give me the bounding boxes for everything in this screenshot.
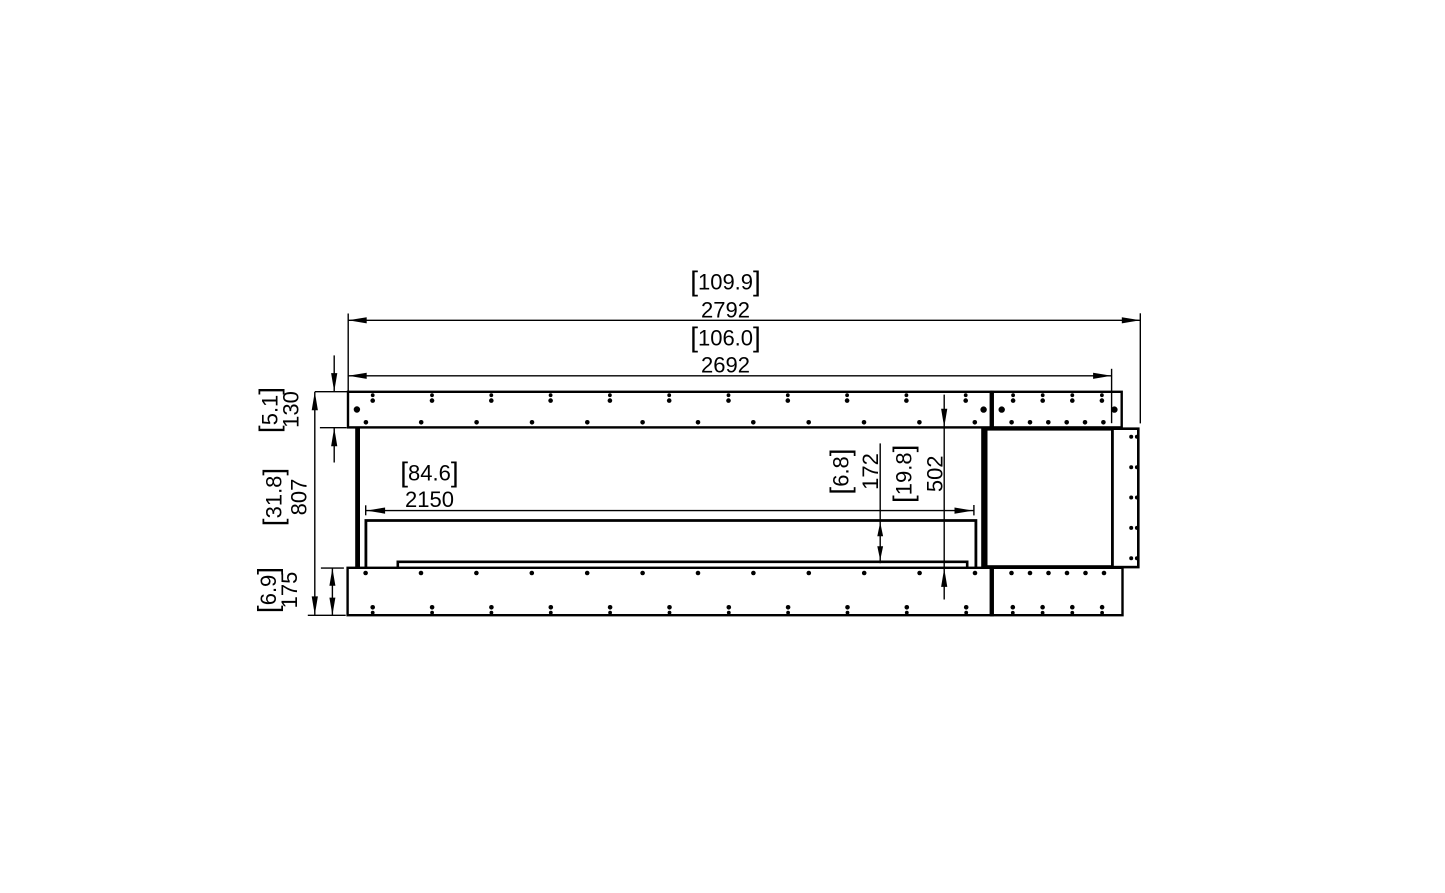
svg-text:[31.8]: [31.8] — [257, 468, 288, 526]
svg-text:172: 172 — [858, 453, 883, 490]
svg-text:2150: 2150 — [405, 487, 454, 512]
svg-text:[109.9]: [109.9] — [690, 266, 761, 297]
svg-text:175: 175 — [277, 572, 302, 609]
svg-text:[84.6]: [84.6] — [400, 456, 458, 487]
svg-text:2692: 2692 — [701, 353, 750, 378]
svg-text:2792: 2792 — [701, 298, 750, 323]
svg-text:[19.8]: [19.8] — [888, 445, 919, 503]
svg-text:[106.0]: [106.0] — [690, 321, 761, 352]
svg-text:807: 807 — [286, 479, 311, 516]
svg-text:[6.8]: [6.8] — [824, 448, 855, 494]
svg-text:130: 130 — [279, 391, 304, 428]
svg-text:502: 502 — [923, 455, 948, 492]
